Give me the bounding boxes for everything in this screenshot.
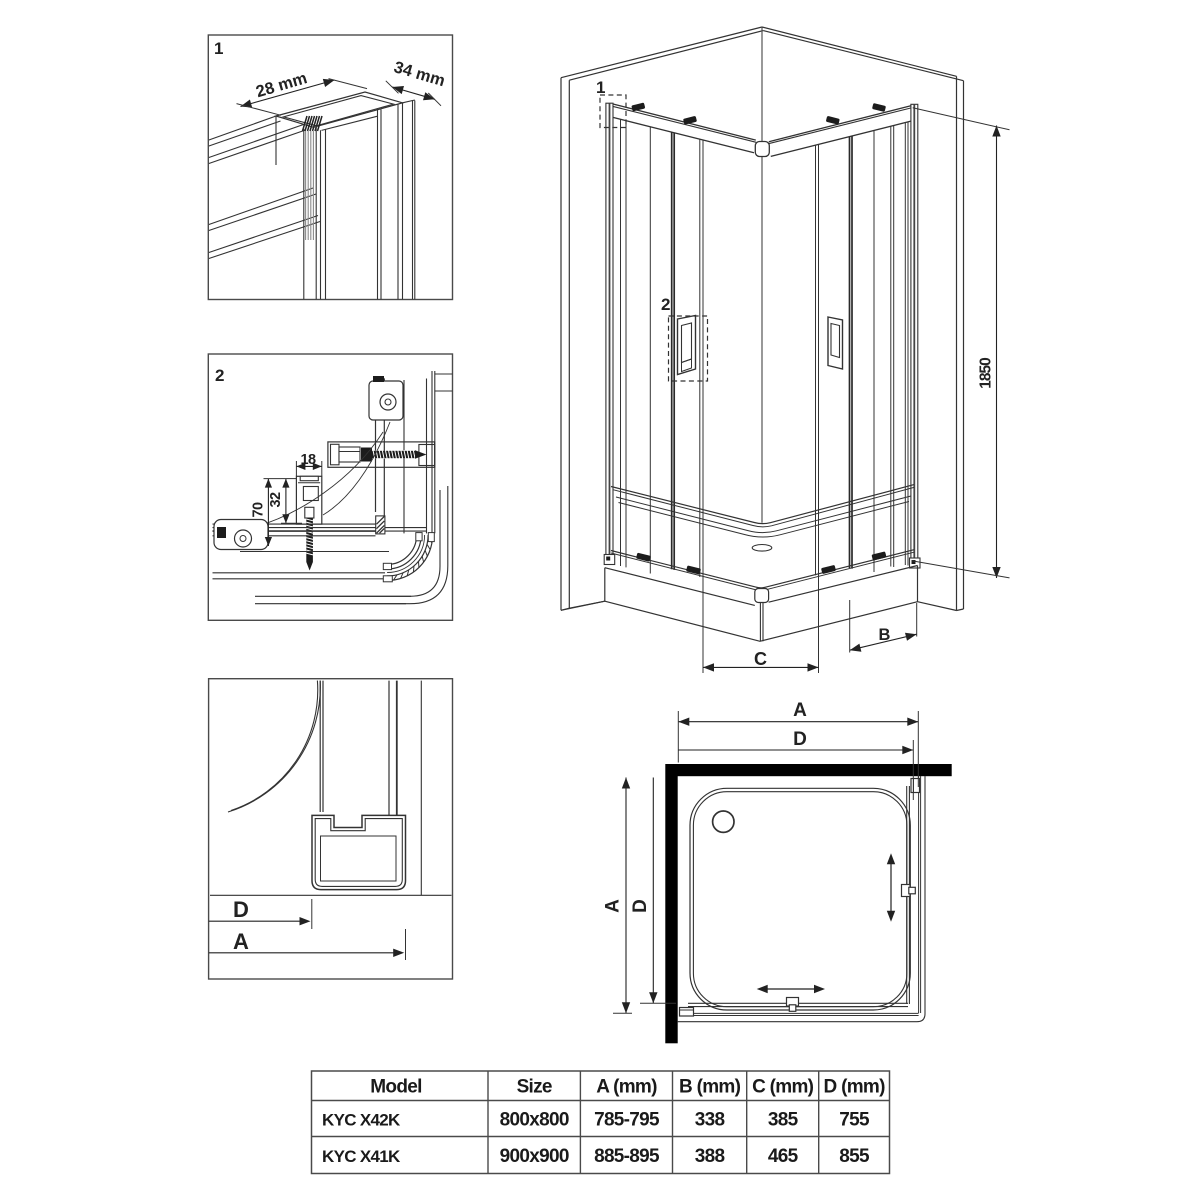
svg-text:Size: Size	[517, 1077, 552, 1098]
svg-text:KYC X42K: KYC X42K	[322, 1111, 401, 1130]
svg-text:C: C	[754, 649, 767, 669]
svg-text:A (mm): A (mm)	[596, 1077, 657, 1098]
svg-text:B (mm): B (mm)	[679, 1077, 741, 1098]
svg-text:388: 388	[695, 1146, 725, 1167]
svg-text:900x900: 900x900	[500, 1146, 569, 1167]
svg-text:Model: Model	[370, 1077, 421, 1098]
svg-text:B: B	[879, 626, 891, 644]
svg-text:465: 465	[768, 1146, 799, 1167]
svg-text:KYC X41K: KYC X41K	[322, 1147, 401, 1166]
svg-text:D: D	[233, 897, 249, 922]
svg-text:855: 855	[839, 1146, 870, 1167]
svg-text:D (mm): D (mm)	[823, 1077, 885, 1098]
svg-text:785-795: 785-795	[594, 1110, 660, 1131]
svg-text:1850: 1850	[978, 358, 995, 389]
svg-text:800x800: 800x800	[500, 1110, 569, 1131]
svg-text:1: 1	[596, 78, 605, 97]
svg-text:A: A	[603, 899, 624, 913]
svg-text:70: 70	[251, 502, 267, 517]
svg-text:A: A	[233, 929, 249, 954]
svg-text:338: 338	[695, 1110, 725, 1131]
svg-text:755: 755	[839, 1110, 870, 1131]
svg-text:32: 32	[268, 492, 284, 507]
svg-text:2: 2	[661, 295, 670, 314]
svg-text:1: 1	[214, 39, 223, 58]
svg-text:2: 2	[215, 366, 224, 385]
svg-text:D: D	[793, 729, 807, 750]
svg-text:18: 18	[301, 452, 316, 468]
svg-text:385: 385	[768, 1110, 799, 1131]
svg-text:885-895: 885-895	[594, 1146, 660, 1167]
svg-text:C (mm): C (mm)	[752, 1077, 814, 1098]
svg-text:A: A	[793, 700, 807, 721]
svg-text:D: D	[630, 899, 651, 913]
